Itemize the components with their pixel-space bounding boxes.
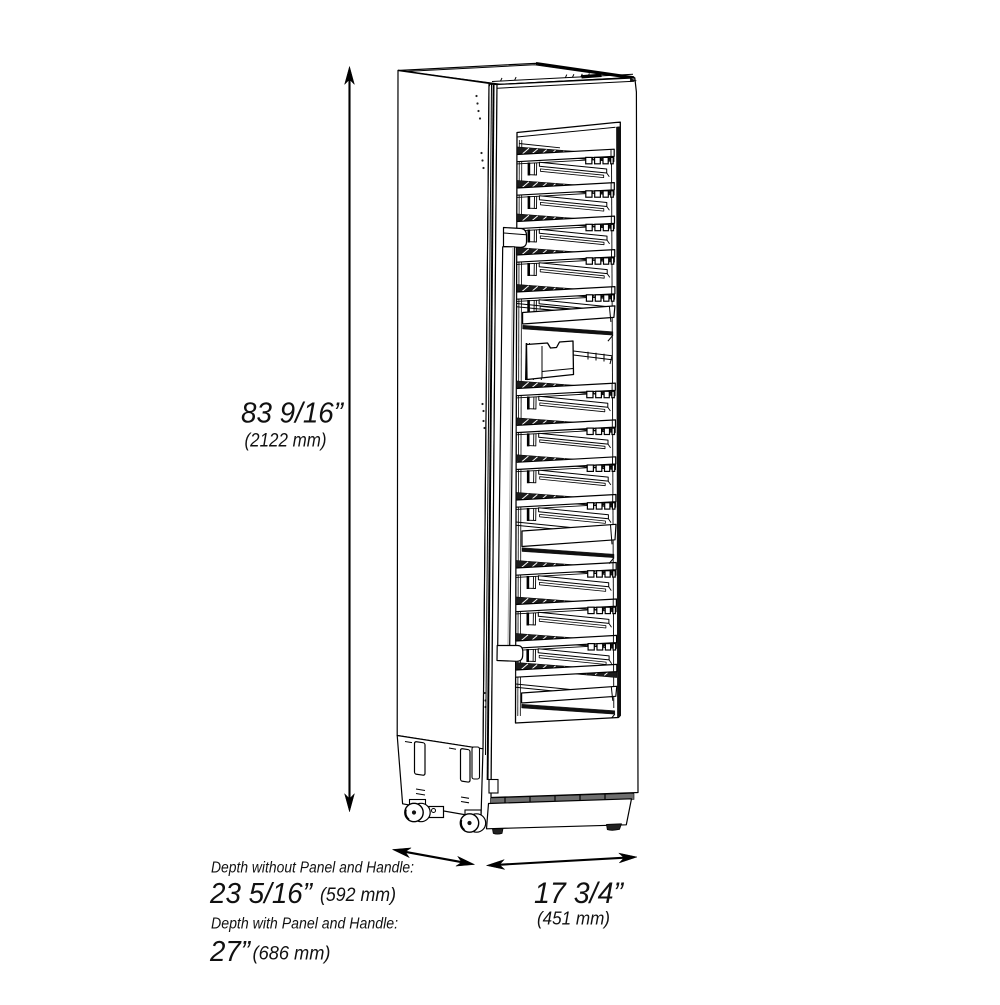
svg-text:23 5/16”: 23 5/16” [209,878,313,910]
svg-text:(2122 mm): (2122 mm) [245,431,327,452]
svg-text:(451 mm): (451 mm) [537,908,610,929]
svg-text:Depth without Panel and Handle: Depth without Panel and Handle: [211,860,414,877]
svg-text:(686 mm): (686 mm) [253,944,331,965]
svg-text:(592 mm): (592 mm) [320,885,396,906]
svg-text:17 3/4”: 17 3/4” [534,877,624,910]
svg-text:Depth with Panel and Handle:: Depth with Panel and Handle: [211,915,398,932]
svg-text:83 9/16”: 83 9/16” [241,398,344,430]
svg-text:27”: 27” [209,936,251,968]
